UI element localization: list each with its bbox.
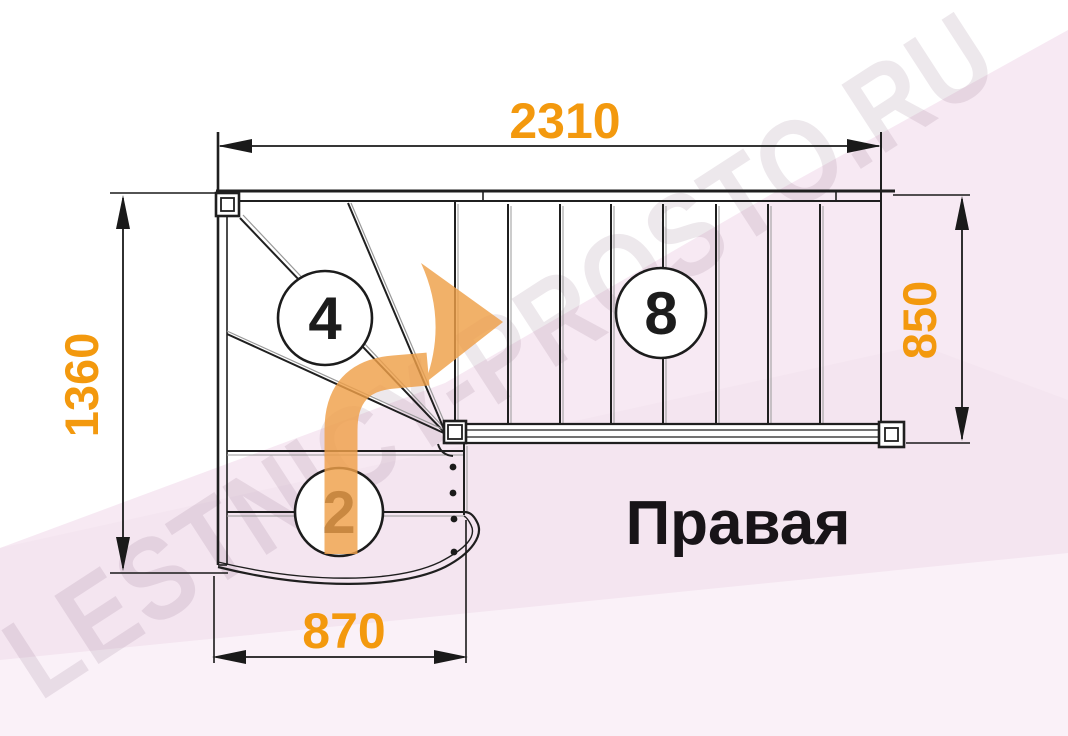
step-number-label: 8 [644,280,677,347]
staircase-plan-diagram: LESTNICY-PROSTO.RU [0,0,1068,736]
step-number-upper: 8 [616,268,706,358]
step-number-winder: 4 [278,271,372,365]
staircase-plan-page: LESTNICY-PROSTO.RU [0,0,1068,736]
dim-top-label: 2310 [509,93,620,149]
orientation-label: Правая [626,489,851,558]
dim-bottom-label: 870 [302,603,385,659]
step-number-label: 4 [308,285,342,352]
dim-left-label: 1360 [55,333,108,438]
dim-right-label: 850 [893,281,946,359]
upper-flight-handrail [446,423,902,444]
